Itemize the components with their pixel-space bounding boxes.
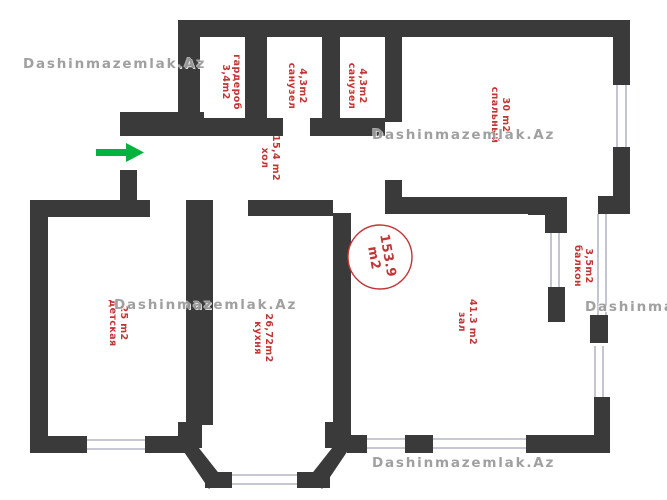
- watermark-4: Dashinmazemlak.Az: [585, 299, 667, 315]
- windows: [87, 85, 626, 484]
- watermark-2: Dashinmazemlak.Az: [372, 127, 555, 143]
- walls: [30, 20, 630, 489]
- room-label-hall: 15,4 m2 хол: [259, 135, 281, 181]
- room-label-living-room: 41.3 m2 зал: [456, 299, 478, 345]
- floor-plan-drawing: [0, 0, 667, 500]
- room-label-bathroom2: 4,3m2 санузел: [346, 63, 368, 110]
- floor-plan: гардероб 3,4m2 4,3m2 санузел 4,3m2 сануз…: [0, 0, 667, 500]
- watermark-1: Dashinmazemlak.Az: [23, 56, 206, 72]
- watermark-3: Dashinmazemlak.Az: [114, 297, 297, 313]
- entry-arrow-icon: [96, 143, 144, 162]
- watermark-5: Dashinmazemlak.Az: [372, 455, 555, 471]
- room-label-kitchen: 26,72m2 кухня: [252, 313, 274, 362]
- room-label-bathroom1: 4,3m2 санузел: [286, 63, 308, 110]
- room-label-balcony: 3,5m2 балкон: [572, 245, 594, 287]
- room-label-wardrobe: гардероб 3,4m2: [220, 54, 242, 109]
